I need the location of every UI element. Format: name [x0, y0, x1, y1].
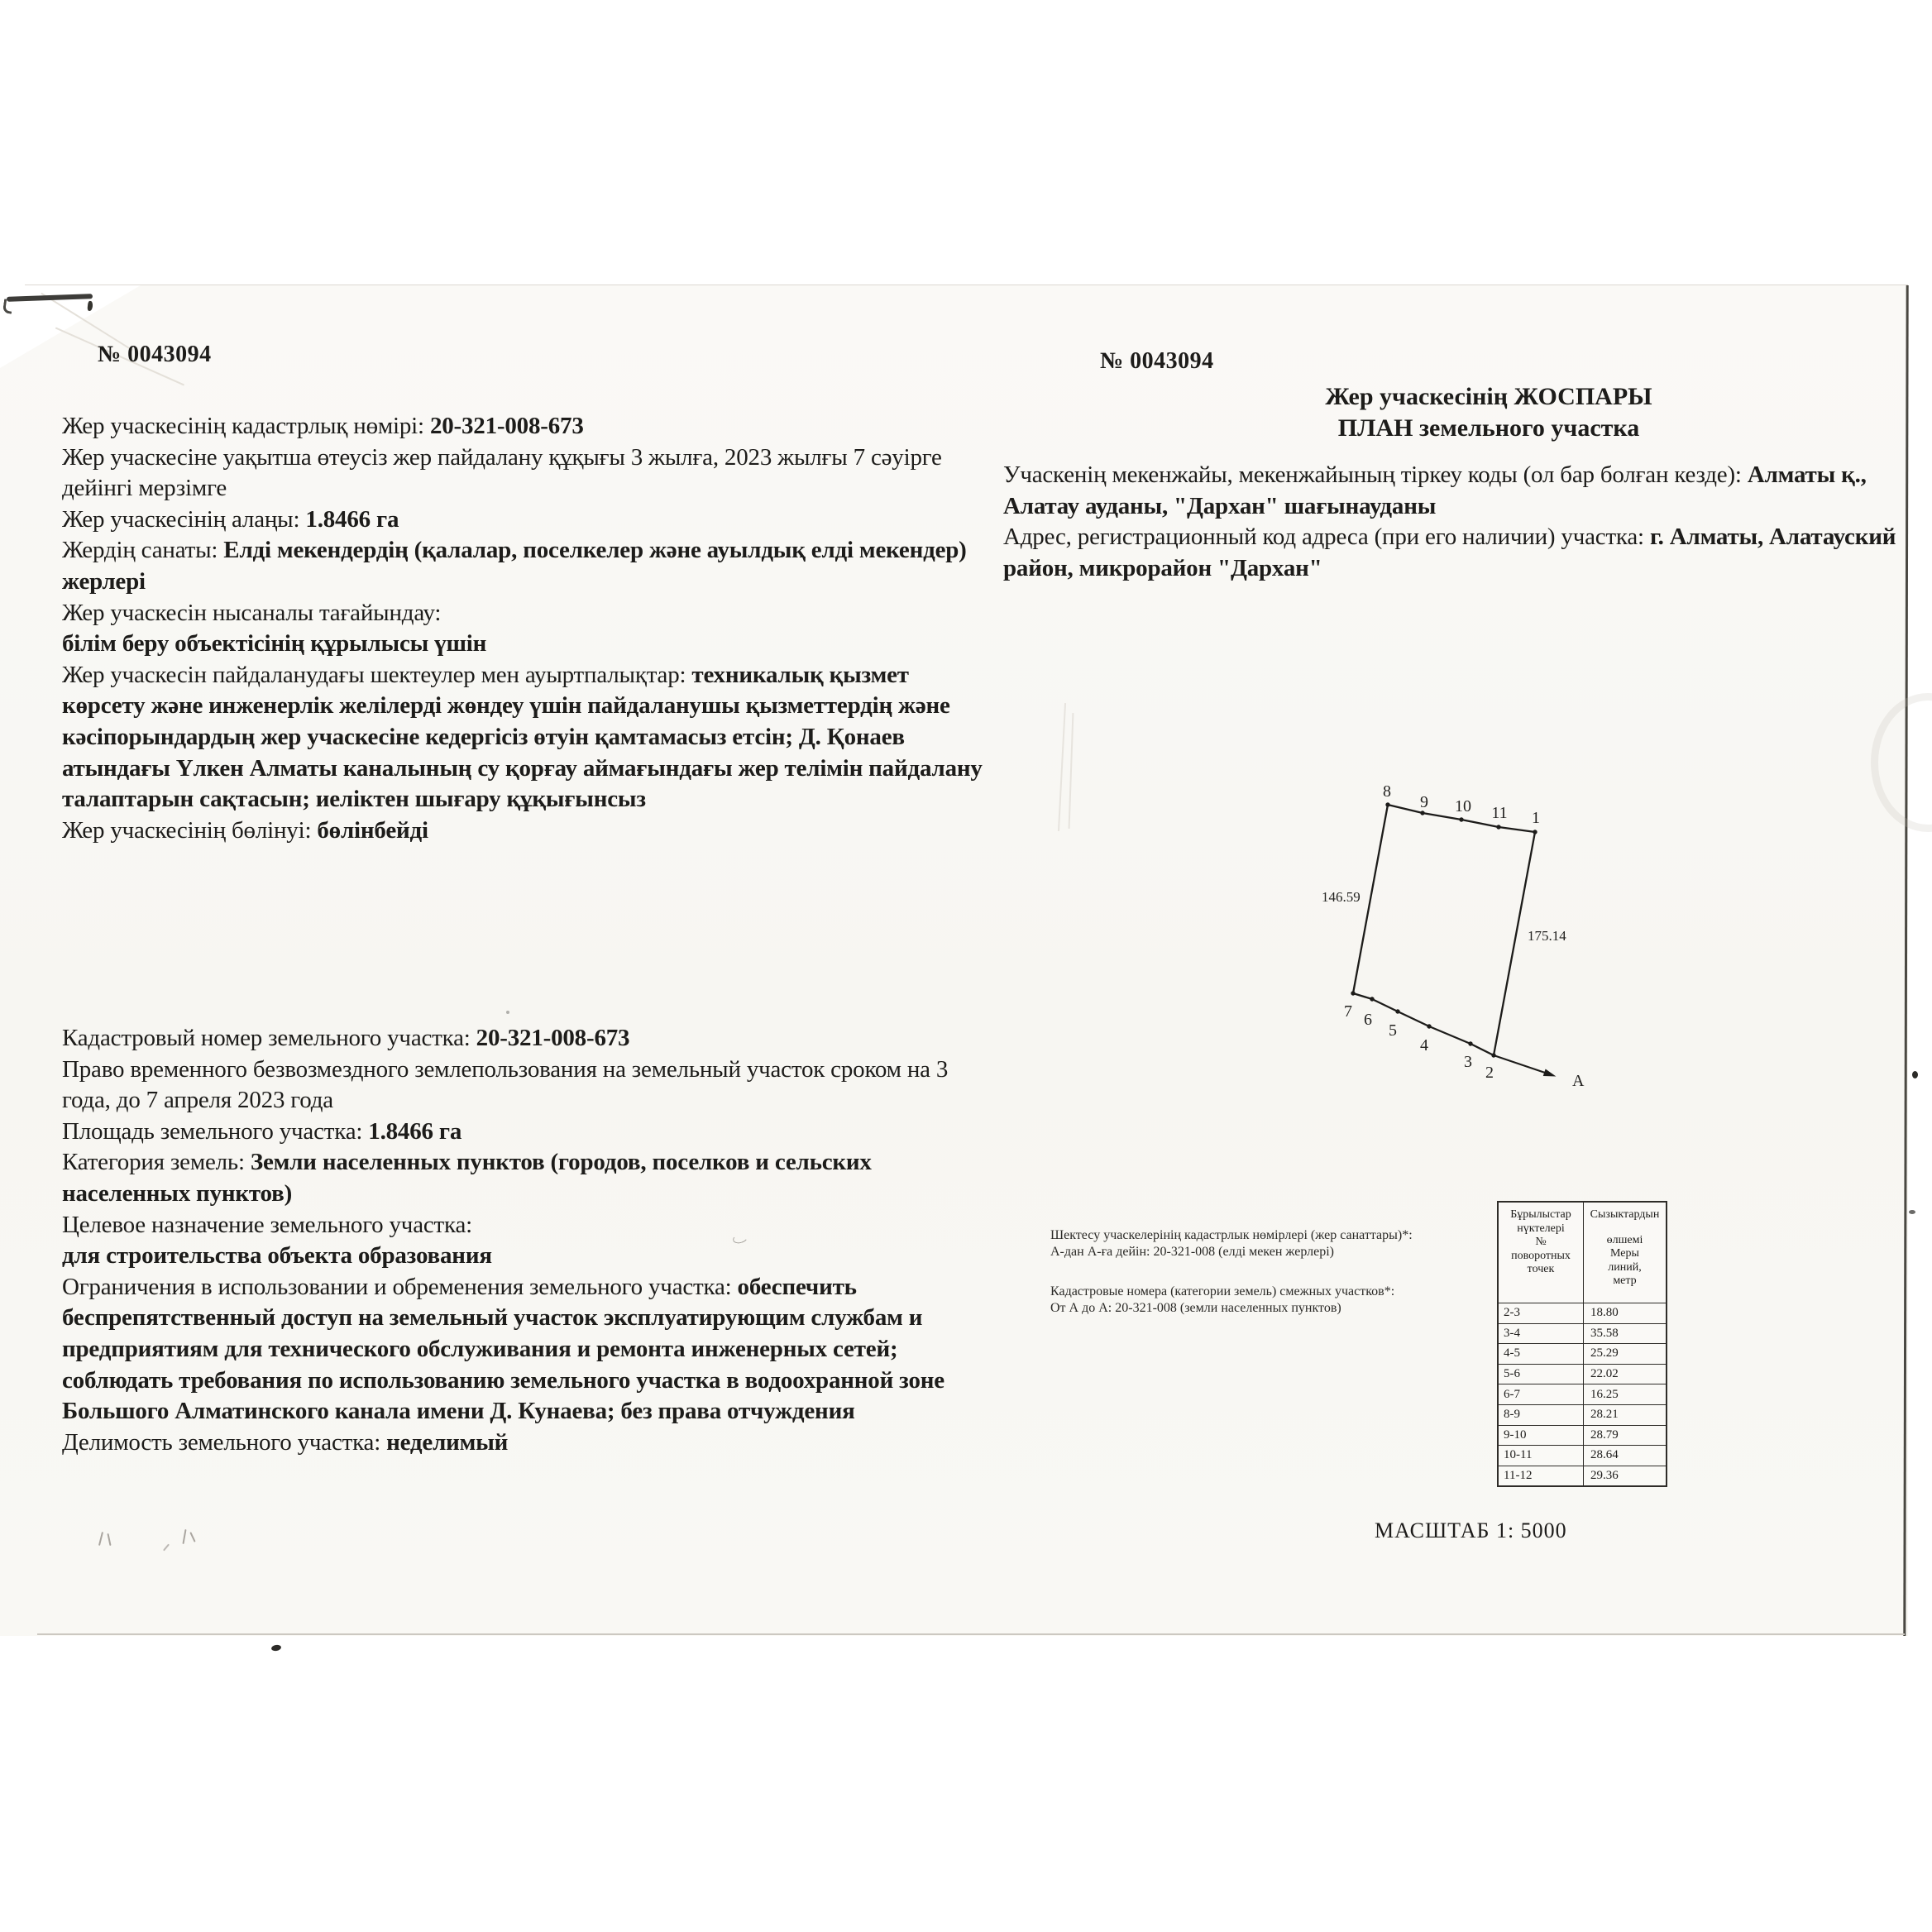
ru-info-block: Кадастровый номер земельного участка: 20…: [62, 1023, 997, 1458]
point-label: 6: [1364, 1011, 1372, 1029]
cell-points: 6-7: [1499, 1384, 1584, 1404]
table-header-line: Бұрылыстар: [1499, 1208, 1583, 1222]
paper-bottom-edge: [37, 1633, 1905, 1635]
note-line: А-дан А-ға дейін: 20-321-008 (елді мекен…: [1050, 1244, 1413, 1260]
cell-points: 2-3: [1499, 1303, 1584, 1323]
parcel-plan-drawing: 8910111234567146.59175.14А: [1311, 777, 1592, 1100]
text-line: талаптарын сақтасын; иеліктен шығару құқ…: [62, 784, 997, 815]
table-row: 6-716.25: [1499, 1384, 1666, 1404]
document-number-left: № 0043094: [98, 342, 212, 368]
boundary-point-dot: [1459, 817, 1463, 821]
cell-length: 28.21: [1584, 1405, 1666, 1425]
text-line: Жер учаскесін нысаналы тағайындау:: [62, 598, 997, 629]
table-header-line: Сызыктардын: [1584, 1208, 1666, 1222]
text-line: Площадь земельного участка: 1.8466 га: [62, 1117, 997, 1148]
text-line: года, до 7 апреля 2023 года: [62, 1085, 997, 1117]
cell-length: 28.79: [1584, 1426, 1666, 1446]
cell-points: 10-11: [1499, 1446, 1584, 1466]
table-row: 3-435.58: [1499, 1323, 1666, 1344]
table-row: 4-525.29: [1499, 1343, 1666, 1364]
table-header-row: Бұрылыстарнүктелері№поворотныхточек Сызы…: [1499, 1203, 1666, 1303]
cell-length: 18.80: [1584, 1303, 1666, 1323]
text-line: көрсету және инженерлік желілерді жөндеу…: [62, 691, 997, 722]
table-header-line: точек: [1499, 1263, 1583, 1277]
text-line: Жер учаскесін пайдаланудағы шектеулер ме…: [62, 660, 997, 691]
table-header-line: нүктелері: [1499, 1222, 1583, 1236]
text-line: кәсіпорындардың жер учаскесіне кедергісі…: [62, 722, 997, 753]
table-header-points: Бұрылыстарнүктелері№поворотныхточек: [1499, 1203, 1584, 1303]
table-header-line: поворотных: [1499, 1250, 1583, 1264]
table-header-line: Меры: [1584, 1247, 1666, 1261]
point-label: 2: [1485, 1064, 1494, 1082]
boundary-point-dot: [1420, 811, 1424, 815]
cell-length: 29.36: [1584, 1466, 1666, 1486]
text-line: Делимость земельного участка: неделимый: [62, 1427, 997, 1459]
text-line: Жер учаскесінің алаңы: 1.8466 га: [62, 505, 997, 536]
boundary-point-dot: [1427, 1024, 1431, 1028]
cell-points: 9-10: [1499, 1426, 1584, 1446]
plan-title-ru: ПЛАН земельного участка: [1199, 413, 1778, 444]
adjacent-parcels-note-ru: Кадастровые номера (категории земель) см…: [1050, 1284, 1394, 1316]
table-row: 8-928.21: [1499, 1404, 1666, 1425]
text-line: Жер учаскесінің кадастрлық нөмірі: 20-32…: [62, 411, 997, 442]
boundary-point-dot: [1370, 997, 1374, 1001]
point-label: 4: [1420, 1036, 1428, 1054]
text-line: Кадастровый номер земельного участка: 20…: [62, 1023, 997, 1054]
note-line: Кадастровые номера (категории земель) см…: [1050, 1284, 1394, 1300]
boundary-point-dot: [1533, 830, 1537, 834]
cell-length: 28.64: [1584, 1446, 1666, 1466]
point-label: 1: [1532, 809, 1540, 827]
cell-points: 4-5: [1499, 1344, 1584, 1364]
scan-speck: [1912, 1071, 1918, 1078]
scan-speck: [506, 1011, 509, 1014]
text-line: Категория земель: Земли населенных пункт…: [62, 1147, 997, 1179]
text-line: Ограничения в использовании и обременени…: [62, 1272, 997, 1303]
table-header-line: метр: [1584, 1274, 1666, 1289]
side-length-label: 175.14: [1528, 928, 1566, 944]
table-row: 2-318.80: [1499, 1303, 1666, 1323]
paper-top-edge: [25, 285, 1908, 285]
text-line: для строительства объекта образования: [62, 1241, 997, 1272]
cell-length: 16.25: [1584, 1384, 1666, 1404]
cell-points: 3-4: [1499, 1324, 1584, 1344]
cell-points: 5-6: [1499, 1365, 1584, 1384]
table-row: 9-1028.79: [1499, 1425, 1666, 1446]
text-line: Жердің санаты: Елді мекендердің (қалалар…: [62, 535, 997, 567]
point-label: 7: [1344, 1002, 1352, 1021]
text-line: Учаскенің мекенжайы, мекенжайының тіркеу…: [1003, 460, 1913, 491]
text-line: Алатау ауданы, "Дархан" шағынауданы: [1003, 491, 1913, 523]
boundary-point-dot: [1468, 1041, 1472, 1045]
map-scale-label: МАСШТАБ 1: 5000: [1375, 1518, 1567, 1543]
cell-points: 11-12: [1499, 1466, 1584, 1486]
text-line: район, микрорайон "Дархан": [1003, 553, 1913, 585]
point-label: 3: [1464, 1053, 1472, 1071]
text-line: Жер учаскесінің бөлінуі: бөлінбейді: [62, 815, 997, 847]
document-number-right: № 0043094: [1100, 348, 1214, 375]
table-header-line: линий,: [1584, 1261, 1666, 1275]
boundary-point-dot: [1496, 825, 1500, 829]
direction-arrowhead: [1543, 1069, 1557, 1076]
text-line: дейінгі мерзімге: [62, 473, 997, 505]
text-line: предприятиям для технического обслуживан…: [62, 1334, 997, 1365]
cell-length: 35.58: [1584, 1324, 1666, 1344]
cell-length: 25.29: [1584, 1344, 1666, 1364]
text-line: Большого Алматинского канала имени Д. Ку…: [62, 1396, 997, 1427]
table-header-line: өлшемі: [1584, 1234, 1666, 1248]
plan-title: Жер учаскесінің ЖОСПАРЫ ПЛАН земельного …: [1199, 381, 1778, 444]
point-label: 8: [1383, 782, 1391, 801]
table-row: 5-622.02: [1499, 1364, 1666, 1384]
note-line: Шектесу учаскелерінің кадастрлык нөмірле…: [1050, 1227, 1413, 1244]
plan-title-kk: Жер учаскесінің ЖОСПАРЫ: [1199, 381, 1778, 413]
boundary-point-dot: [1351, 991, 1355, 995]
adjacent-parcels-note-kk: Шектесу учаскелерінің кадастрлык нөмірле…: [1050, 1227, 1413, 1260]
scanned-land-document: № 0043094 Жер учаскесінің кадастрлық нөм…: [0, 0, 1932, 1932]
table-body: 2-318.803-435.584-525.295-622.026-716.25…: [1499, 1303, 1666, 1485]
text-line: населенных пунктов): [62, 1179, 997, 1210]
table-header-lengths: СызыктардынөлшеміМерылиний,метр: [1584, 1203, 1666, 1303]
table-row: 10-1128.64: [1499, 1445, 1666, 1466]
text-line: Право временного безвозмездного землепол…: [62, 1054, 997, 1086]
text-line: атындағы Үлкен Алматы каналының су қорға…: [62, 753, 997, 785]
text-line: соблюдать требования по использованию зе…: [62, 1365, 997, 1397]
text-line: Целевое назначение земельного участка:: [62, 1210, 997, 1241]
text-line: беспрепятственный доступ на земельный уч…: [62, 1303, 997, 1334]
table-header-line: №: [1499, 1236, 1583, 1250]
cell-points: 8-9: [1499, 1405, 1584, 1425]
cell-length: 22.02: [1584, 1365, 1666, 1384]
scan-speck: [270, 1644, 281, 1652]
table-row: 11-1229.36: [1499, 1466, 1666, 1486]
parcel-boundary: [1353, 805, 1535, 1055]
text-line: білім беру объектісінің құрылысы үшін: [62, 629, 997, 660]
note-line: От А до А: 20-321-008 (земли населенных …: [1050, 1300, 1394, 1317]
text-line: жерлері: [62, 567, 997, 598]
measurements-table: Бұрылыстарнүктелері№поворотныхточек Сызы…: [1497, 1201, 1667, 1487]
point-label: 10: [1455, 797, 1471, 815]
point-label: 5: [1389, 1021, 1397, 1040]
scan-speck: [1909, 1210, 1915, 1214]
direction-arrow: [1494, 1055, 1547, 1074]
text-line: Адрес, регистрационный код адреса (при е…: [1003, 522, 1913, 553]
address-block: Учаскенің мекенжайы, мекенжайының тіркеу…: [1003, 460, 1913, 584]
point-label: 11: [1491, 804, 1507, 822]
direction-label: А: [1572, 1072, 1585, 1090]
side-length-label: 146.59: [1322, 889, 1361, 905]
boundary-point-dot: [1395, 1009, 1399, 1013]
point-label: 9: [1420, 793, 1428, 811]
kk-info-block: Жер учаскесінің кадастрлық нөмірі: 20-32…: [62, 411, 997, 846]
boundary-point-dot: [1385, 802, 1389, 806]
text-line: Жер учаскесіне уақытша өтеусіз жер пайда…: [62, 442, 997, 474]
